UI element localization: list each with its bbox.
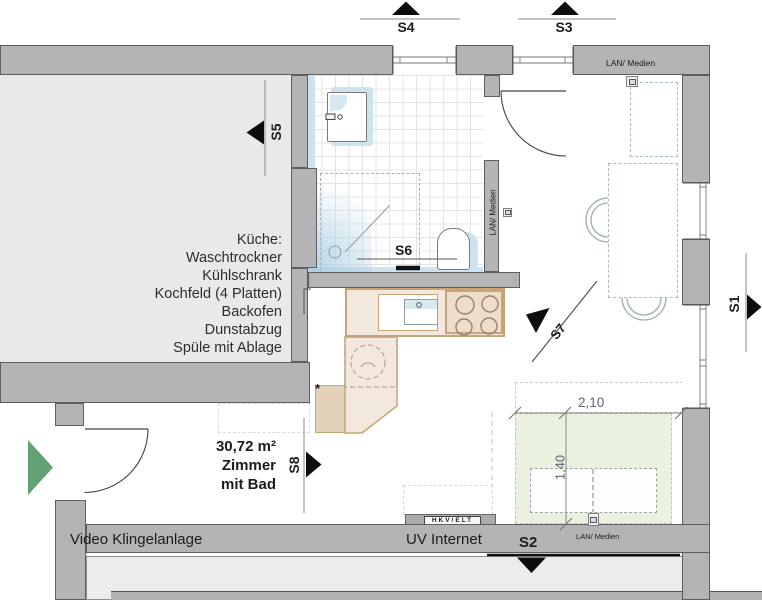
- section-label-s3: S3: [542, 19, 586, 35]
- window-right-upper: [682, 183, 710, 239]
- lan-socket-icon: [626, 76, 638, 87]
- room-area: 30,72 m²: [216, 437, 276, 456]
- window-s3: [513, 45, 573, 75]
- wall: [682, 239, 710, 305]
- bed: [530, 468, 657, 513]
- video-intercom-label: Video Klingelanlage: [70, 531, 202, 548]
- kitchen-legend-item: Backofen: [155, 303, 282, 321]
- kitchen-legend-item: Kühlschrank: [155, 267, 282, 285]
- room-name-line1: Zimmer: [216, 456, 276, 475]
- wall: [682, 408, 710, 600]
- section-label-s6: S6: [395, 242, 412, 258]
- lan-label-bed: LAN/ Medien: [576, 532, 619, 541]
- bottom-outer-wall: [111, 591, 762, 600]
- kitchen-legend-item: Dunstabzug: [155, 321, 282, 339]
- kitchen-sink-basin: [405, 300, 437, 309]
- dimension-width: 2,10: [578, 395, 604, 410]
- wall: [55, 403, 84, 426]
- wall: [291, 168, 317, 268]
- lan-socket-icon: [503, 208, 512, 217]
- lan-label-top: LAN/ Medien: [606, 58, 655, 68]
- wall: [0, 362, 310, 403]
- wall: [291, 75, 308, 168]
- section-label-s7: S7: [547, 321, 569, 343]
- toilet: [437, 228, 470, 270]
- wall: [456, 45, 513, 75]
- lan-socket-icon: [588, 513, 599, 526]
- section-label-s5: S5: [268, 118, 284, 146]
- wall: [308, 272, 520, 288]
- kitchen-legend-item: Kochfeld (4 Platten): [155, 285, 282, 303]
- window-right-lower: [682, 305, 710, 408]
- wall: [0, 45, 393, 75]
- section-label-s8: S8: [286, 451, 302, 479]
- kitchen-legend: Küche: Waschtrockner Kühlschrank Kochfel…: [155, 231, 282, 357]
- floor-plan: HKV/ELT: [0, 0, 762, 600]
- kitchen-legend-item: Spüle mit Ablage: [155, 339, 282, 357]
- storage-outline-hkv: [403, 485, 493, 515]
- entrance-arrow: [28, 440, 53, 495]
- room-name-line2: mit Bad: [216, 475, 276, 494]
- dimension-depth: 1,40: [553, 447, 568, 489]
- table-outline: [608, 163, 678, 298]
- cooktop: [445, 290, 503, 334]
- wall: [55, 500, 86, 600]
- section-label-s4: S4: [384, 19, 428, 35]
- uv-internet-label: UV Internet: [406, 531, 482, 548]
- storage-outline-left: [218, 403, 310, 433]
- wall: [484, 75, 500, 97]
- cupboard-outline: [630, 82, 678, 157]
- window-s4: [393, 45, 456, 75]
- kitchen-cabinet-dark: [315, 385, 360, 433]
- section-label-s1: S1: [726, 290, 742, 318]
- lan-label-bath: LAN/ Medien: [489, 184, 498, 242]
- kitchen-legend-title: Küche:: [155, 231, 282, 249]
- section-label-s2: S2: [519, 534, 537, 551]
- kitchen-legend-item: Waschtrockner: [155, 249, 282, 267]
- wall: [682, 75, 710, 183]
- room-label: 30,72 m² Zimmer mit Bad: [216, 437, 276, 494]
- asterisk-note: *: [315, 381, 320, 396]
- wall: [291, 268, 308, 362]
